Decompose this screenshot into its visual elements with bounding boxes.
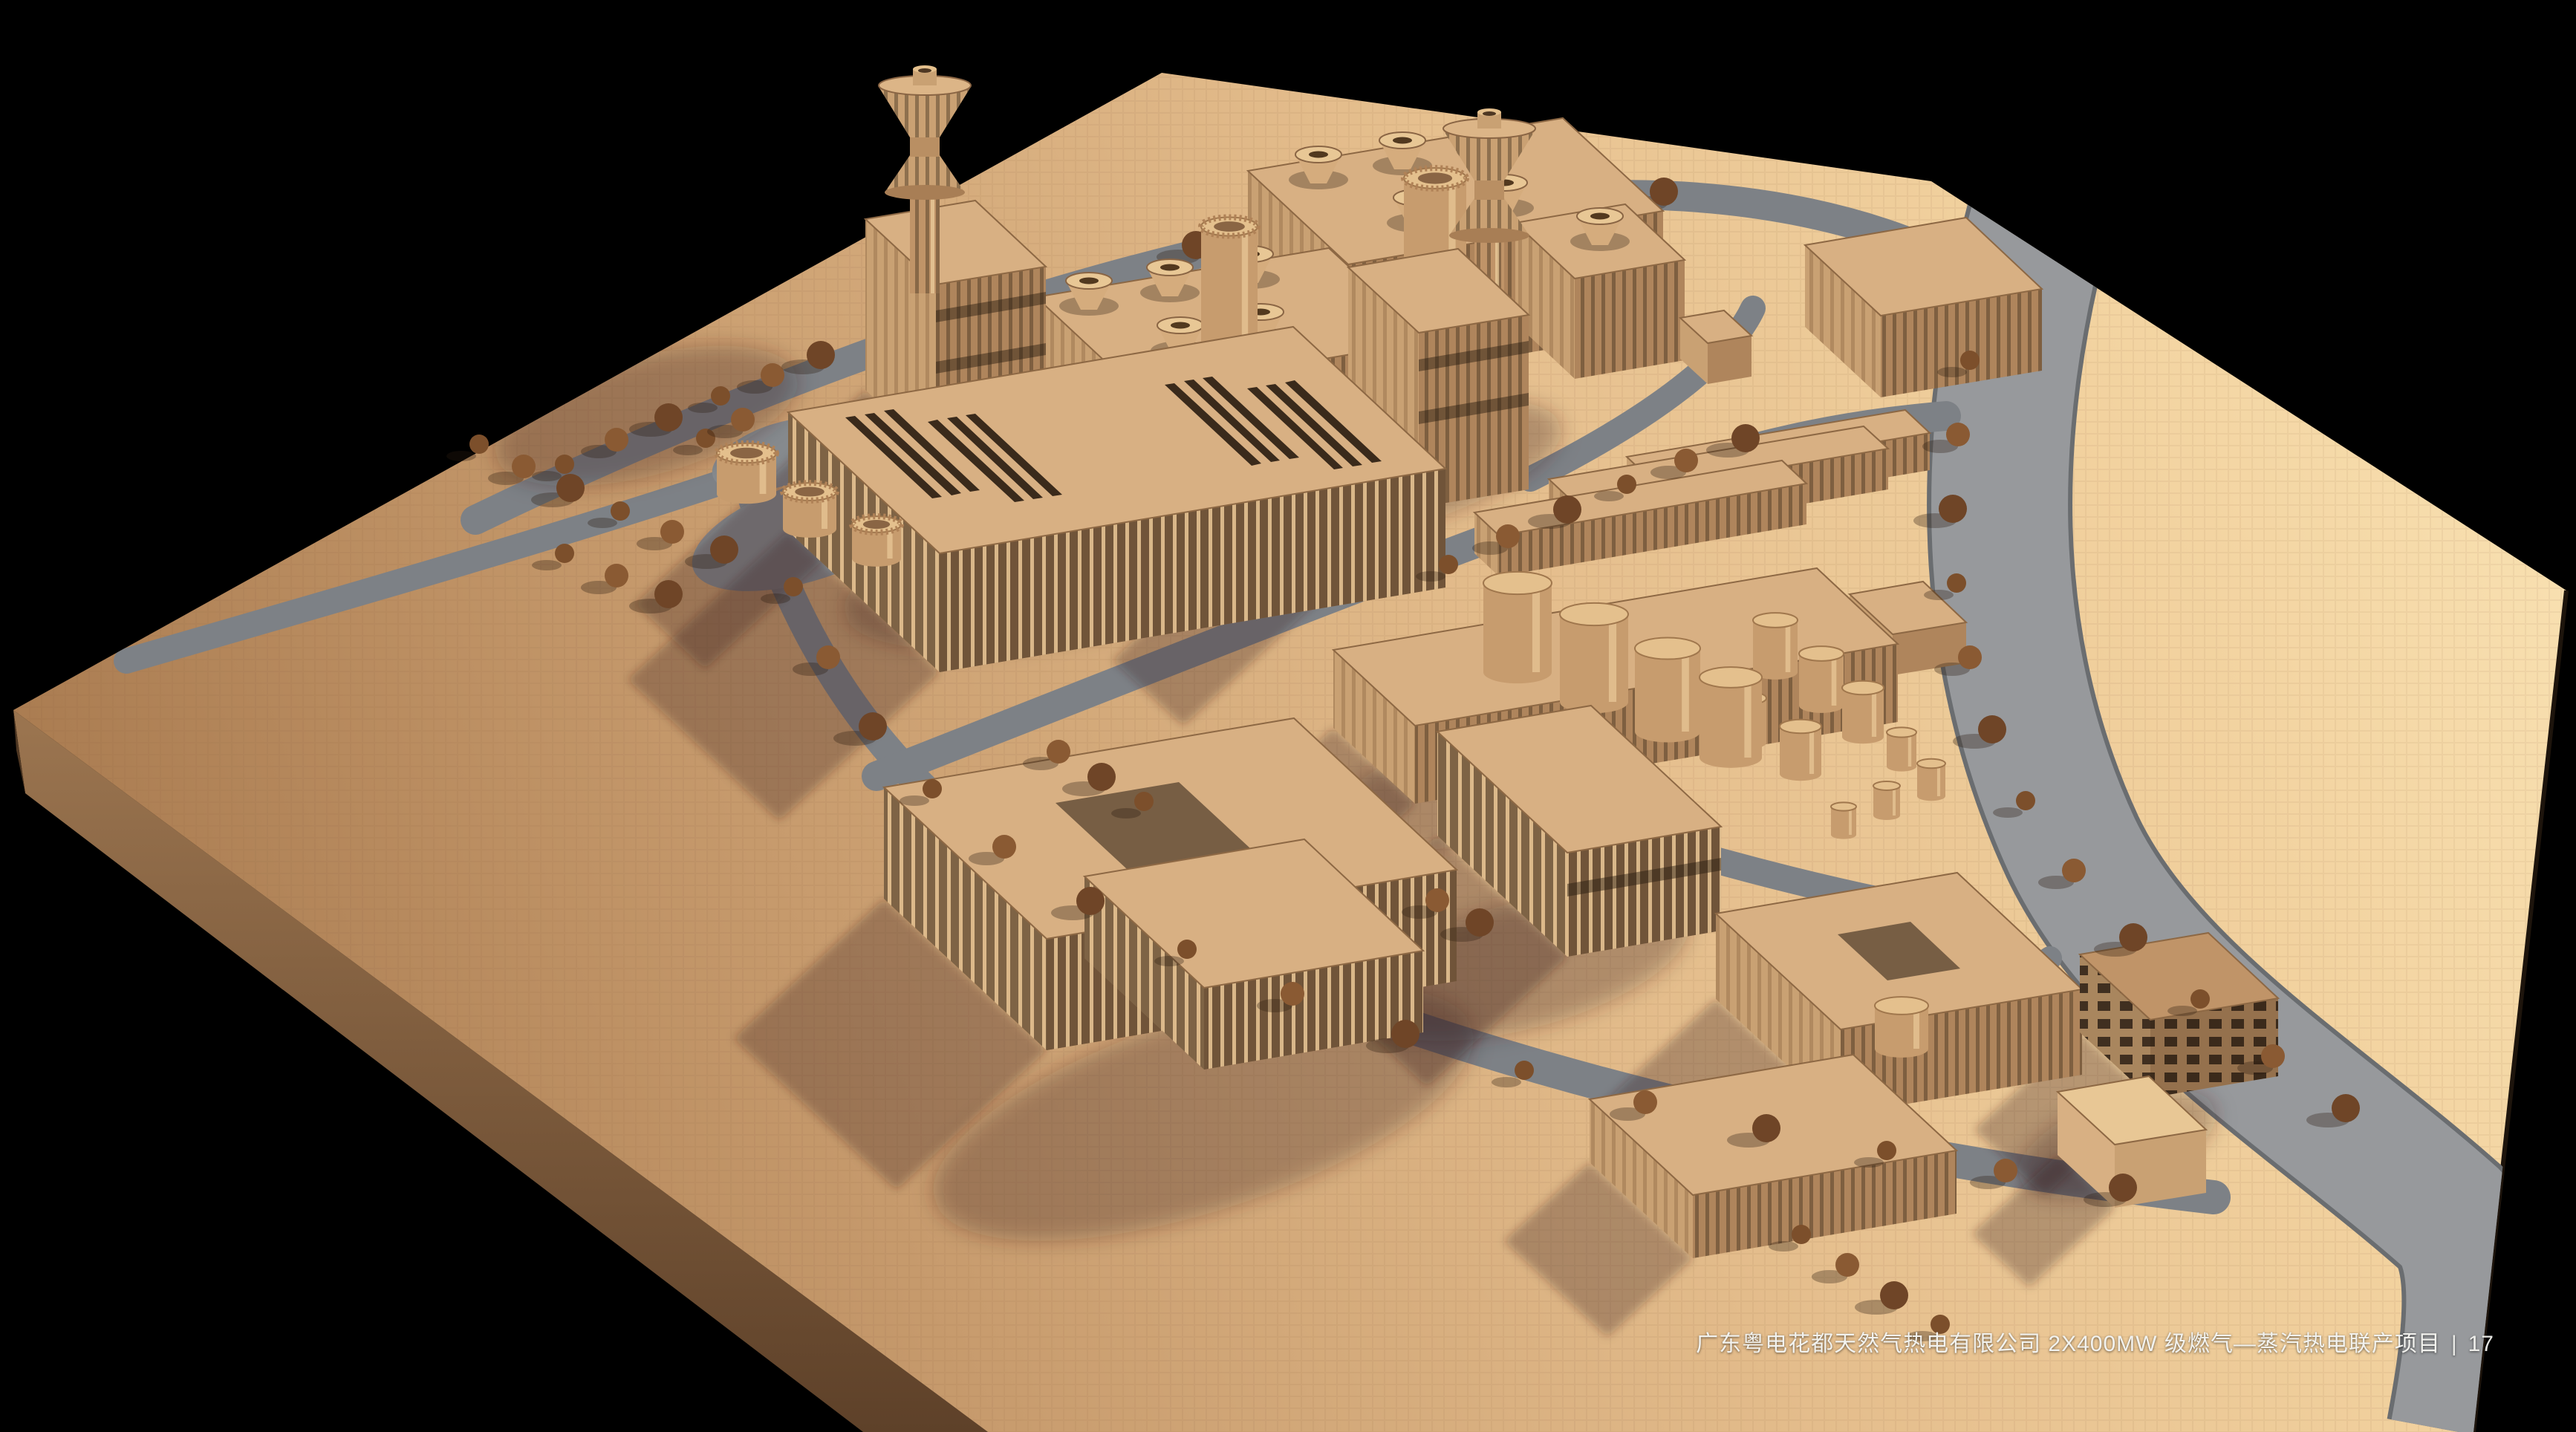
page-number: 17 bbox=[2468, 1332, 2494, 1356]
clarifier-tank-2 bbox=[783, 483, 836, 538]
storage-tank bbox=[1831, 802, 1856, 839]
storage-tank bbox=[1483, 572, 1552, 683]
storage-tank bbox=[1842, 681, 1884, 743]
storage-tank bbox=[1887, 727, 1916, 771]
site-model-render bbox=[0, 0, 2576, 1432]
storage-tank bbox=[1560, 603, 1628, 713]
caption-bar: 广东粤电花都天然气热电有限公司 2X400MW 级燃气—蒸汽热电联产项目|17 bbox=[1696, 1325, 2494, 1358]
storage-tank bbox=[1700, 667, 1762, 768]
storage-tank bbox=[1799, 646, 1844, 713]
courtyard-tank bbox=[1875, 997, 1928, 1058]
clarifier-tank-1 bbox=[717, 443, 776, 504]
storage-tank bbox=[1635, 637, 1700, 742]
project-title: 广东粤电花都天然气热电有限公司 2X400MW 级燃气—蒸汽热电联产项目 bbox=[1696, 1332, 2441, 1356]
storage-tank bbox=[1780, 720, 1821, 781]
storage-tank bbox=[1753, 613, 1798, 680]
caption-separator: | bbox=[2451, 1332, 2458, 1356]
storage-tank bbox=[1873, 781, 1900, 820]
clarifier-tank-3 bbox=[852, 516, 901, 567]
storage-tank bbox=[1917, 759, 1945, 801]
